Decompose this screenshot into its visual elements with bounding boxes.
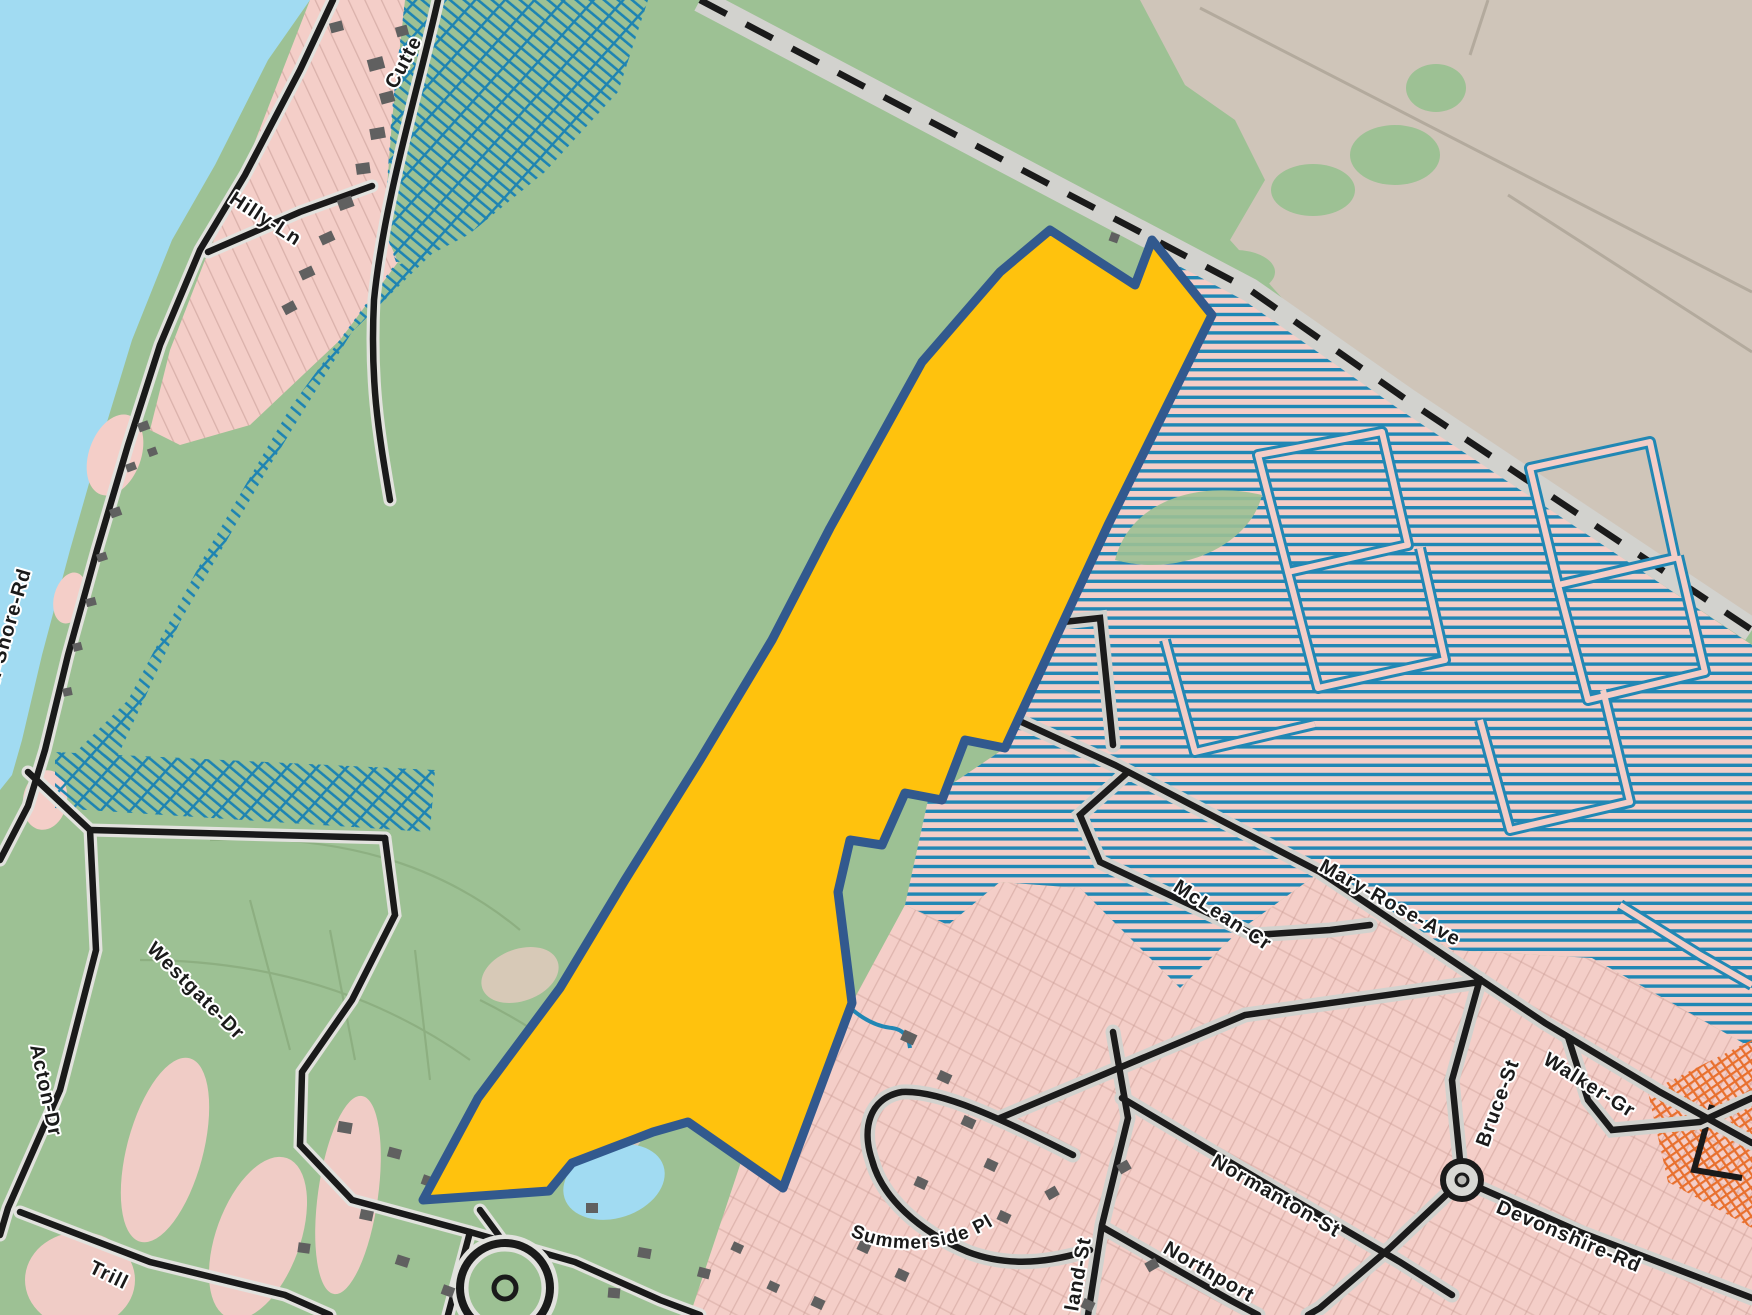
roundabout [1443, 1161, 1481, 1199]
map-svg: North-Shore-Rd Hilly-Ln Cutte Acton-Dr W… [0, 0, 1752, 1315]
map-canvas[interactable]: North-Shore-Rd Hilly-Ln Cutte Acton-Dr W… [0, 0, 1752, 1315]
